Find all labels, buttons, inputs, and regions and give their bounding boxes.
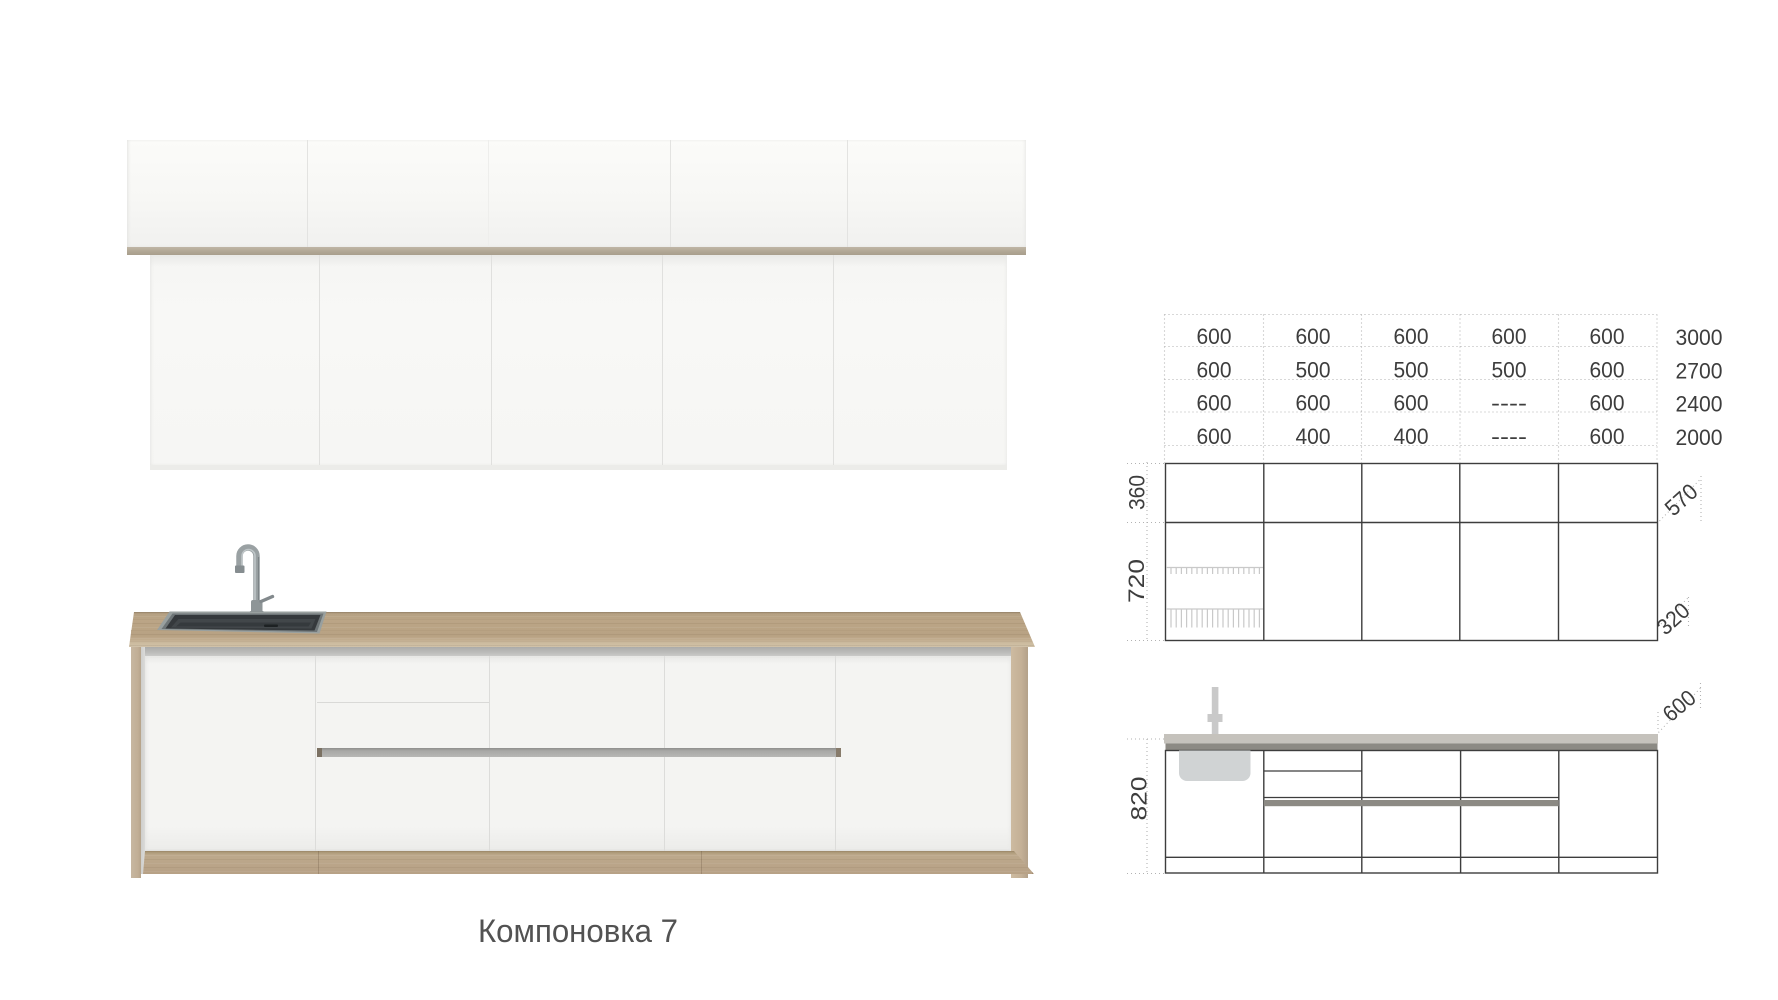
svg-text:2000: 2000 [1676,425,1723,450]
svg-text:500: 500 [1296,358,1331,383]
svg-text:600: 600 [1590,324,1625,349]
svg-text:820: 820 [1127,777,1152,821]
svg-text:600: 600 [1296,391,1331,416]
svg-text:600: 600 [1394,324,1429,349]
svg-text:400: 400 [1296,424,1331,449]
svg-text:500: 500 [1492,358,1527,383]
svg-text:600: 600 [1197,391,1232,416]
svg-text:600: 600 [1658,685,1701,727]
svg-text:2400: 2400 [1676,392,1723,417]
svg-text:600: 600 [1394,391,1429,416]
svg-text:500: 500 [1394,358,1429,383]
svg-text:600: 600 [1492,324,1527,349]
svg-text:400: 400 [1394,424,1429,449]
svg-text:600: 600 [1197,324,1232,349]
svg-text:600: 600 [1590,424,1625,449]
svg-text:570: 570 [1660,479,1703,521]
svg-text:----: ---- [1491,424,1527,449]
svg-text:360: 360 [1125,475,1150,510]
svg-text:600: 600 [1197,358,1232,383]
svg-text:2700: 2700 [1676,359,1723,384]
svg-text:720: 720 [1124,559,1149,603]
svg-text:600: 600 [1590,358,1625,383]
svg-text:Компоновка 7: Компоновка 7 [478,913,678,949]
svg-text:600: 600 [1296,324,1331,349]
svg-text:600: 600 [1590,391,1625,416]
svg-text:3000: 3000 [1676,325,1723,350]
svg-text:320: 320 [1652,598,1695,640]
svg-text:600: 600 [1197,424,1232,449]
svg-text:----: ---- [1491,391,1527,416]
